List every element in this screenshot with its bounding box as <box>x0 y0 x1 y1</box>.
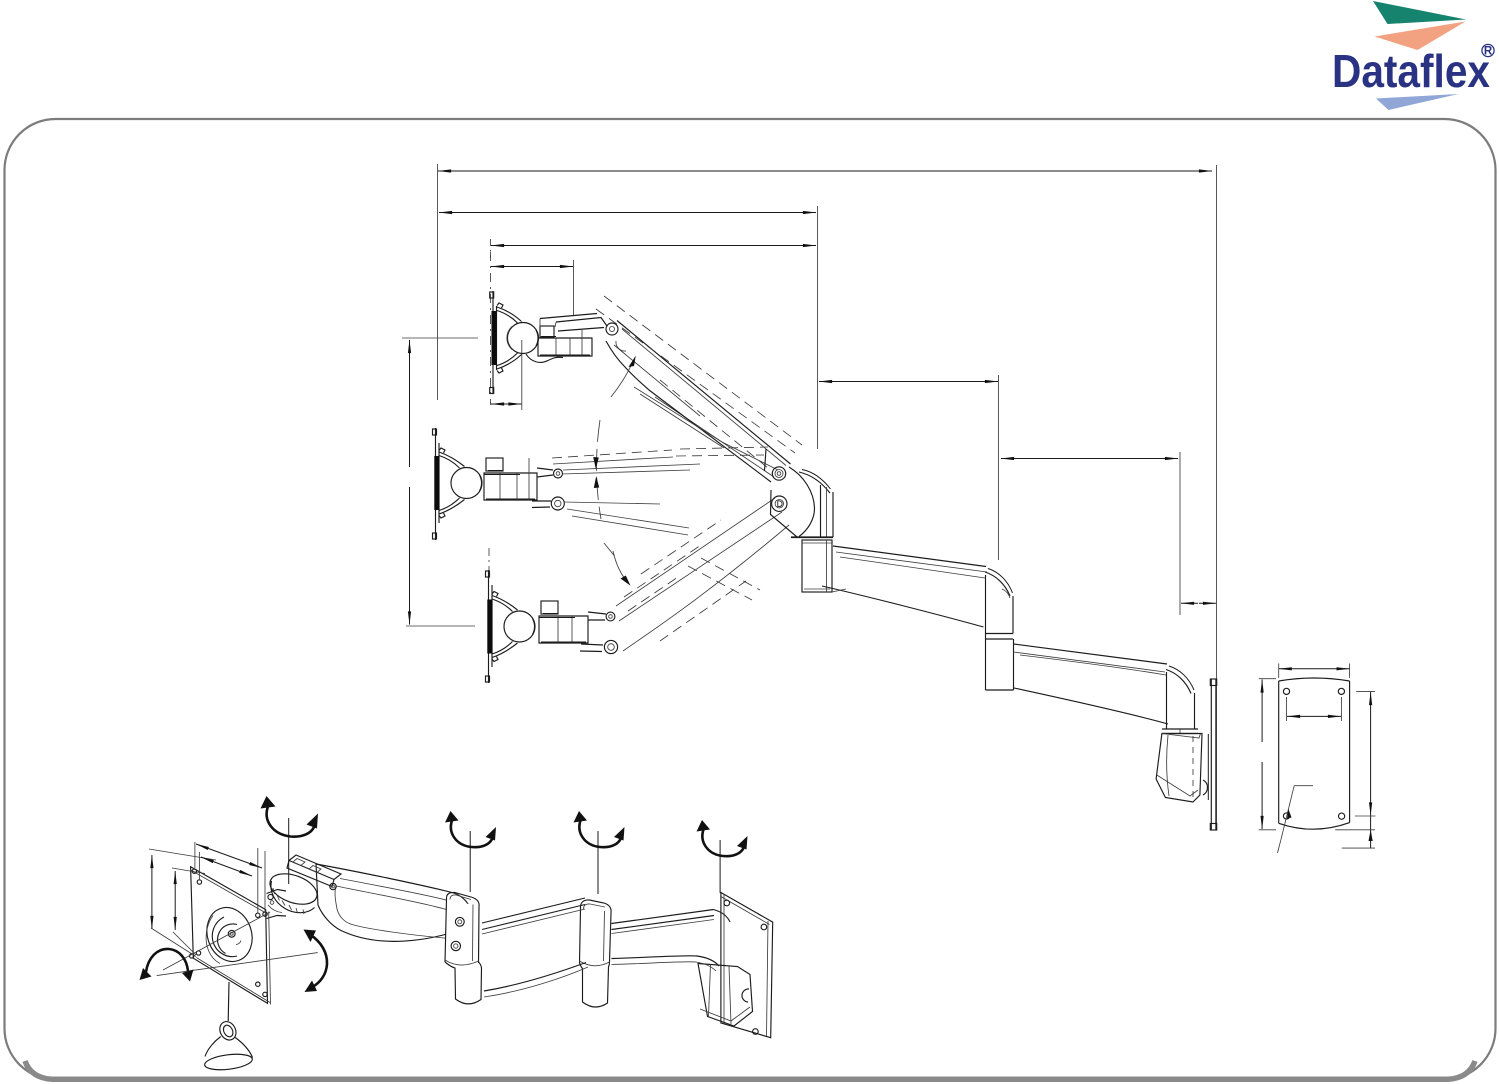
svg-text:R: R <box>1484 46 1493 58</box>
svg-text:Dataflex: Dataflex <box>1332 45 1490 97</box>
